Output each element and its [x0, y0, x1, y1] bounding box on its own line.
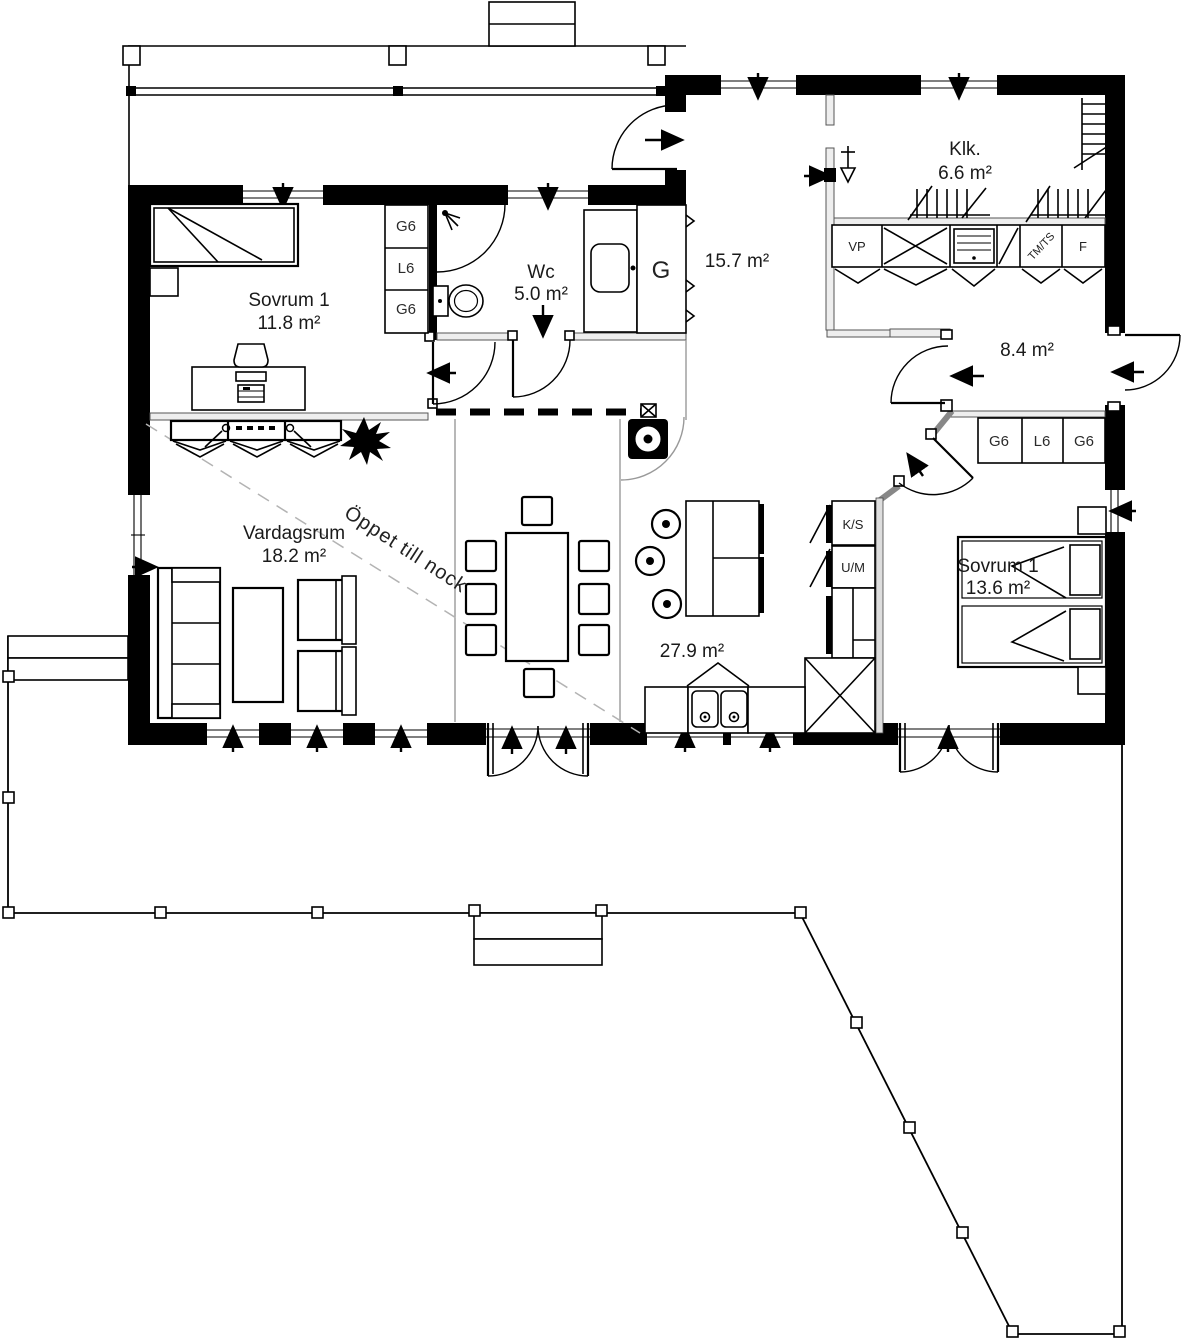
floor-plan-drawing: G6 L6 G6 Sovrum 1 11.8 m² Wc 5.0 m²: [0, 0, 1184, 1344]
porch-post: [648, 46, 665, 65]
room-label: Sovrum 1: [248, 290, 329, 311]
room-area: 11.8 m²: [257, 313, 320, 334]
deck-steps-south: [474, 913, 602, 965]
toilet-icon: [433, 285, 483, 317]
window: [128, 495, 150, 575]
living-room-french-doors: [486, 723, 590, 776]
armchair: [298, 647, 356, 715]
porch-post: [123, 46, 140, 65]
unit-label-um: U/M: [841, 560, 865, 575]
pillow: [1070, 545, 1100, 595]
sofa: [158, 568, 220, 718]
cabinet-label-vp: VP: [848, 239, 865, 254]
room-area: 13.6 m²: [966, 578, 1030, 599]
room-area: 5.0 m²: [514, 284, 568, 305]
closet-label: G6: [1074, 433, 1094, 450]
corner-cabinet: [805, 658, 875, 733]
closet-label: G6: [989, 433, 1009, 450]
oven-unit: U/M: [832, 546, 875, 588]
porch-step: [489, 2, 575, 46]
desk-chair: [234, 344, 268, 367]
dining-table: [506, 533, 568, 661]
room-area: 18.2 m²: [262, 546, 326, 567]
room-area: 6.6 m²: [938, 163, 992, 184]
room-area: 27.9 m²: [660, 641, 724, 662]
porch-post: [389, 46, 406, 65]
room-area: 8.4 m²: [1000, 340, 1054, 361]
nightstand: [1078, 507, 1106, 534]
fridge-unit: K/S: [832, 501, 875, 545]
room-label: Wc: [527, 262, 554, 283]
unit-label-ks: K/S: [843, 517, 864, 532]
single-bed: [150, 204, 298, 266]
wardrobe-label: G: [652, 257, 671, 284]
kitchen-bedroom-wall: [876, 498, 883, 733]
room-label: Klk.: [949, 139, 981, 160]
closet-label: G6: [396, 301, 416, 318]
pillow: [1070, 609, 1100, 659]
side-entry-door: [1105, 326, 1180, 411]
room-label: Sovrum 1: [957, 556, 1038, 577]
hall-closets: G6 L6 G6: [978, 418, 1105, 463]
cabinet-label-f: F: [1079, 239, 1087, 254]
closet-label: L6: [1034, 433, 1051, 450]
vanity-sink: [584, 210, 637, 332]
closet-label: L6: [398, 260, 415, 277]
bedroom1-closets: G6 L6 G6: [385, 205, 428, 333]
deck-steps-west: [8, 636, 128, 680]
room-area: 15.7 m²: [705, 251, 769, 272]
nightstand: [150, 268, 178, 296]
drawer-unit-icon: [954, 229, 994, 263]
floor-plan-page: G6 L6 G6 Sovrum 1 11.8 m² Wc 5.0 m²: [0, 0, 1184, 1344]
desk: [192, 367, 305, 410]
armchair: [298, 576, 356, 644]
closet-label: G6: [396, 218, 416, 235]
nightstand: [1078, 667, 1106, 694]
hall-wardrobe: G: [637, 205, 694, 333]
room-label: Vardagsrum: [243, 523, 345, 544]
kitchen-island: [686, 501, 764, 616]
deck-posts: [3, 671, 1125, 1337]
coffee-table: [233, 588, 283, 702]
